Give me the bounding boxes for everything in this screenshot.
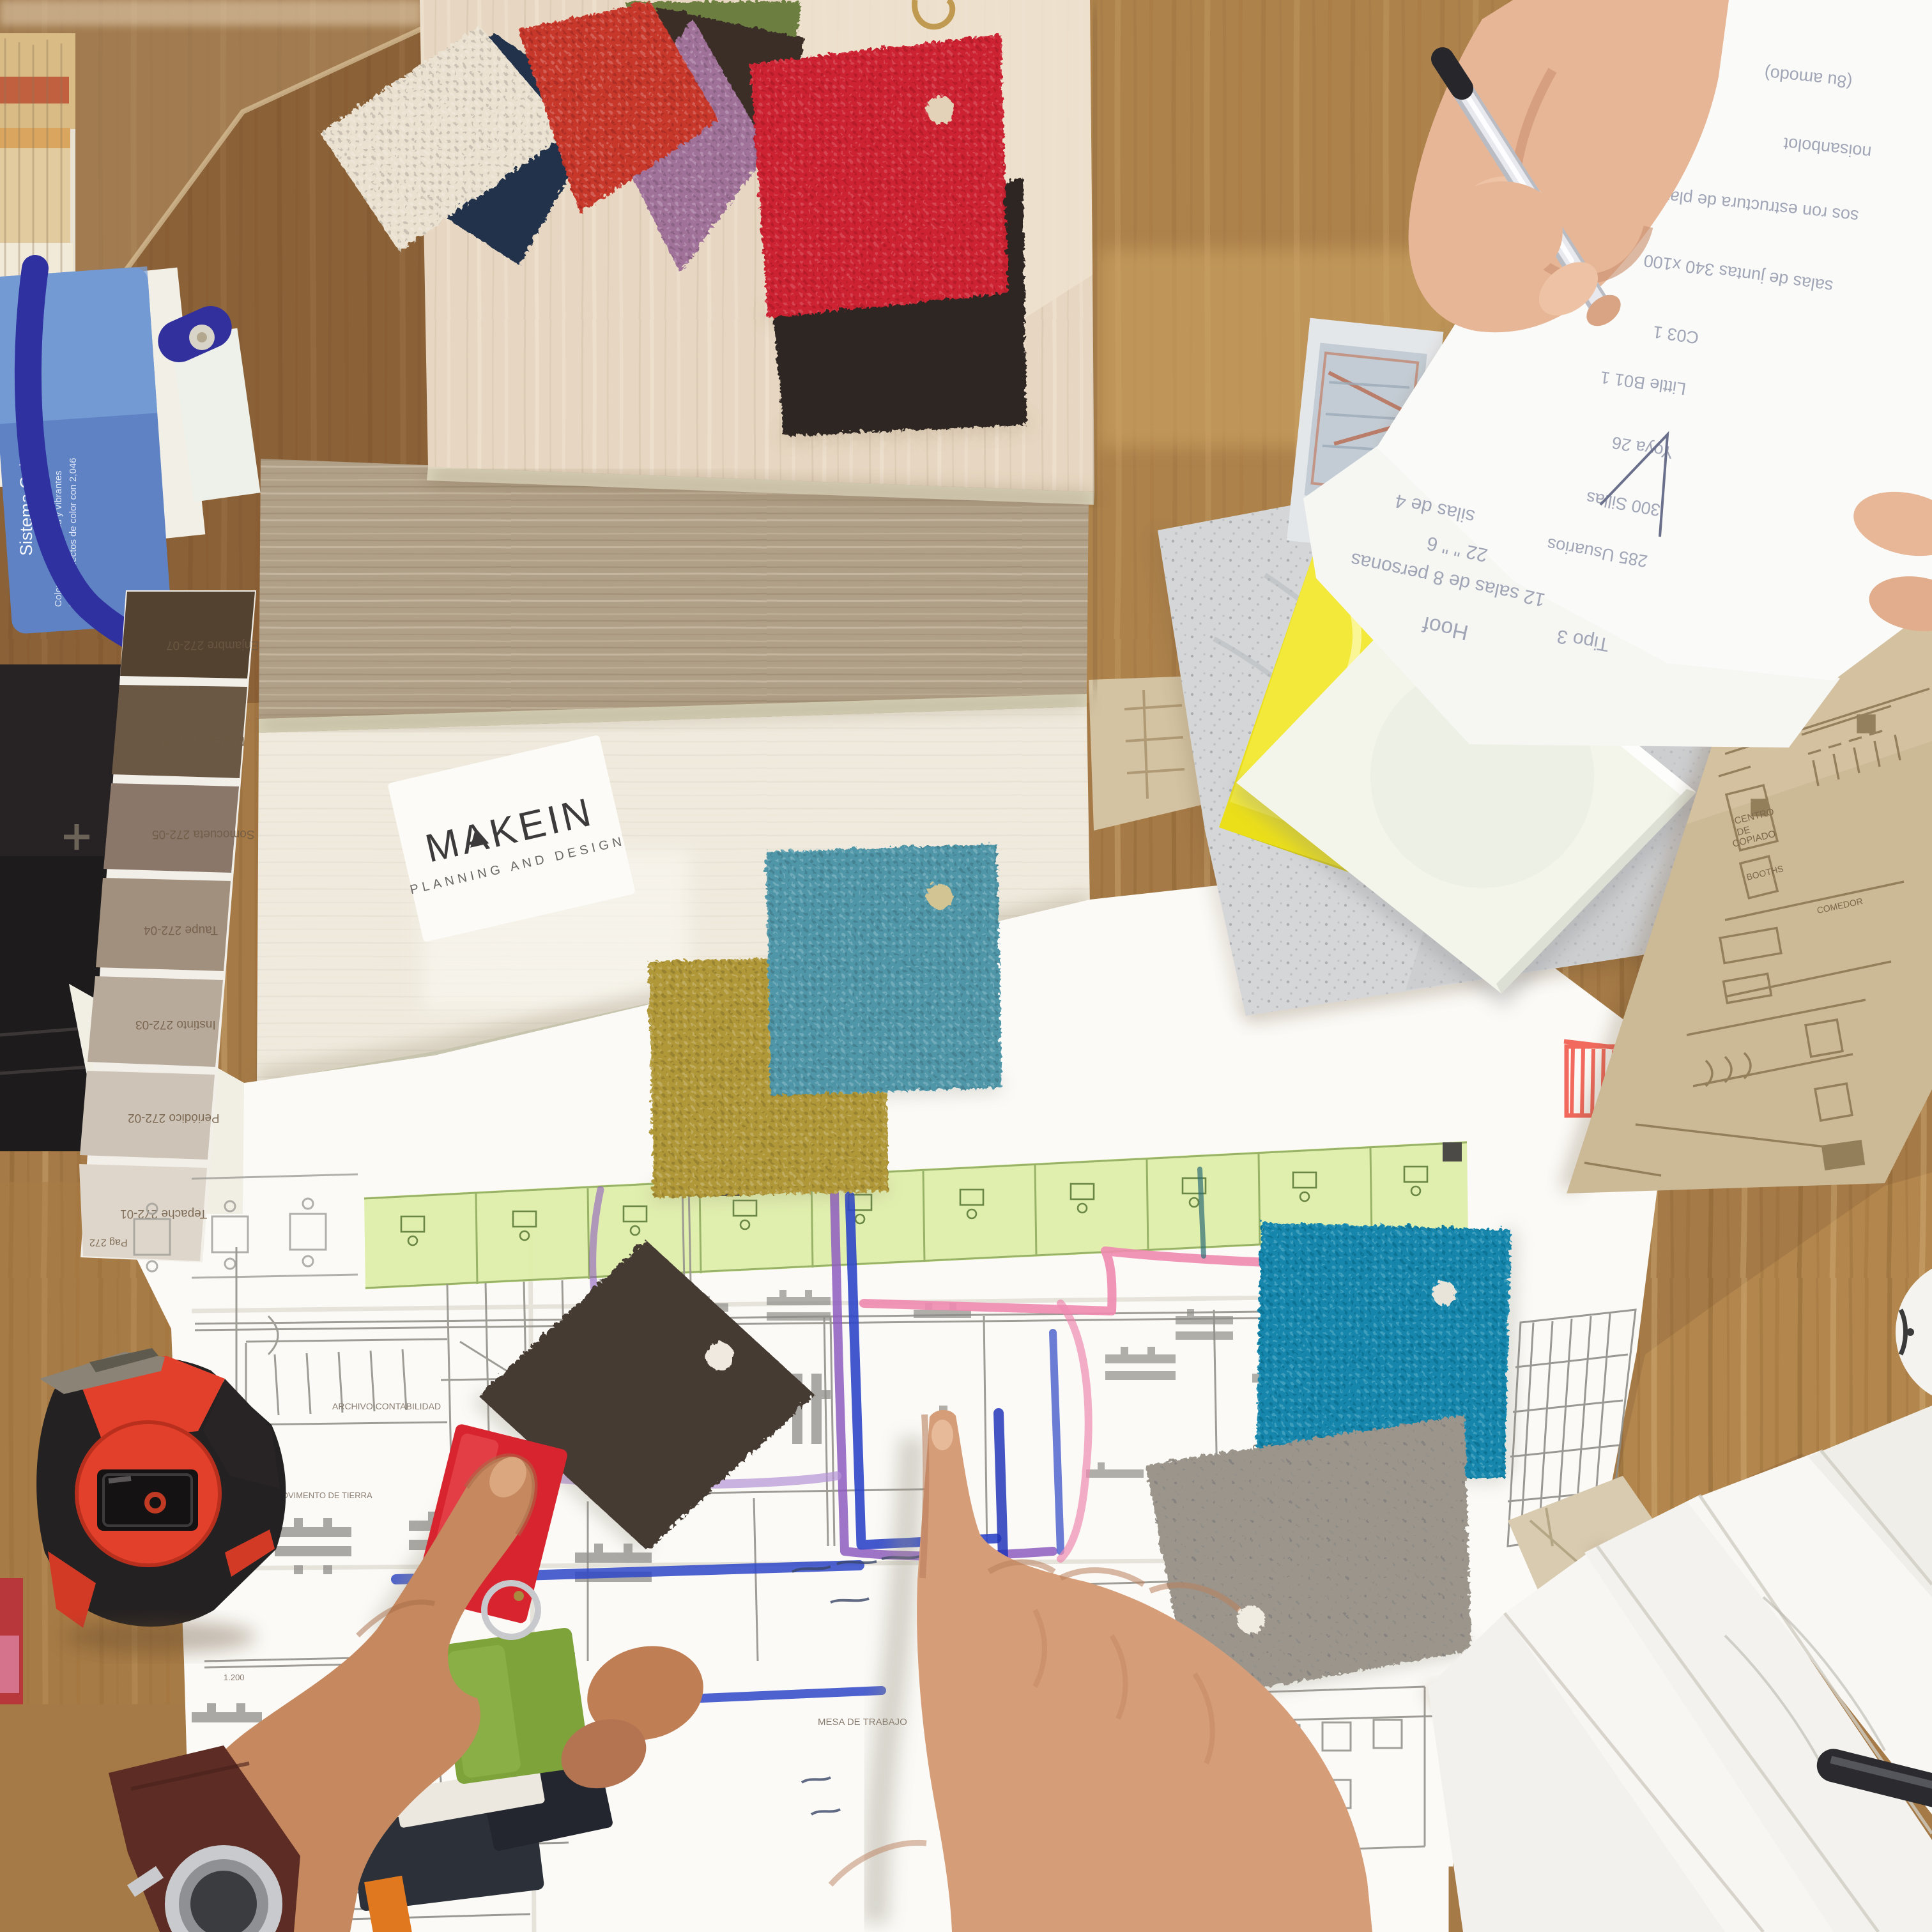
svg-text:Instinto 272-03: Instinto 272-03: [135, 1018, 216, 1031]
svg-text:MOVIMENTO DE TIERRA: MOVIMENTO DE TIERRA: [275, 1491, 372, 1500]
svg-text:Periódico 272-02: Periódico 272-02: [128, 1111, 220, 1124]
svg-text:Somocueta 272-05: Somocueta 272-05: [152, 827, 255, 841]
svg-text:Taupe 272-04: Taupe 272-04: [144, 923, 218, 937]
svg-text:Madeira 272-06: Madeira 272-06: [160, 734, 245, 747]
svg-text:Enjambre 272-07: Enjambre 272-07: [166, 638, 259, 652]
svg-text:Pag 272: Pag 272: [89, 1237, 128, 1248]
svg-text:1.200: 1.200: [224, 1673, 245, 1682]
svg-text:ARCHIVO CONTABILIDAD: ARCHIVO CONTABILIDAD: [332, 1401, 441, 1411]
